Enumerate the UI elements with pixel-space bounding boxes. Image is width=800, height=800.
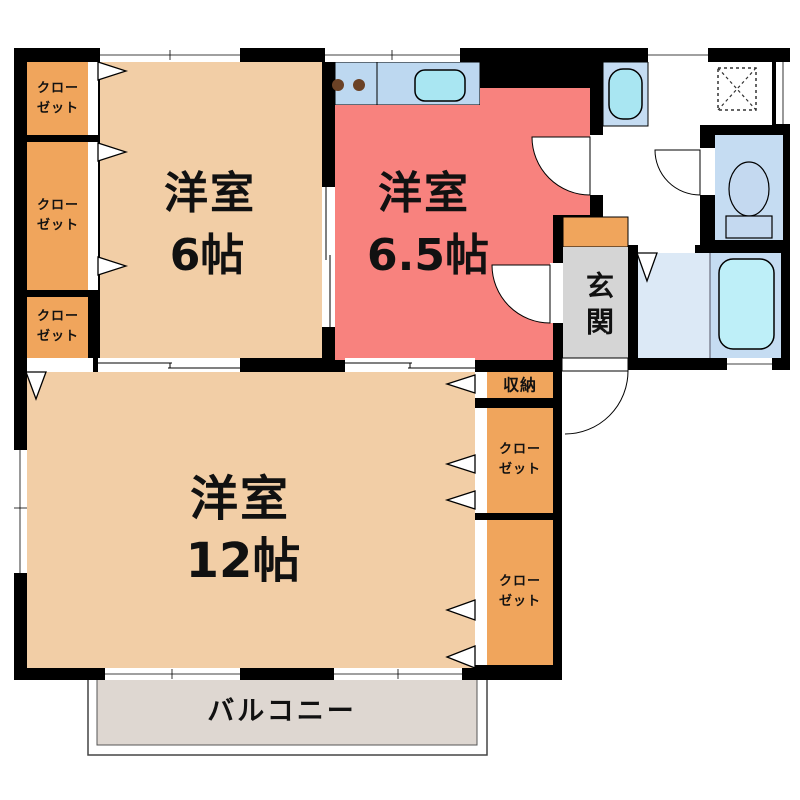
stove-burner-2 — [353, 79, 365, 91]
bedroom12-name: 洋室 — [190, 474, 290, 524]
closet-right-2-door-strip — [475, 520, 487, 665]
storage-label: 収納 — [503, 378, 537, 395]
closet-left-2-door-strip — [88, 142, 98, 290]
closet-right-2-label: クロー ゼット — [499, 572, 541, 612]
bedroom12-size: 12帖 — [186, 536, 301, 586]
bedroom65-name: 洋室 — [378, 171, 470, 217]
stove-burner-1 — [332, 79, 344, 91]
bedroom65-size: 6.5帖 — [367, 233, 489, 279]
closet-left-1-label: クロー ゼット — [37, 79, 79, 119]
closet-label-line1: クロー — [499, 572, 541, 592]
closet-left-3-label: クロー ゼット — [37, 307, 79, 347]
sliding-door-12-a — [98, 358, 240, 372]
bedroom6-name: 洋室 — [164, 171, 256, 217]
closet-label-line2: ゼット — [37, 99, 79, 119]
bedroom6-size: 6帖 — [170, 233, 245, 279]
bathroom-threshold — [638, 245, 695, 253]
sliding-door-6-65 — [322, 187, 335, 327]
closet-right-1-label: クロー ゼット — [499, 440, 541, 480]
closet-label-line2: ゼット — [37, 327, 79, 347]
closet-left-3-fold-opening — [27, 358, 93, 372]
balcony-label: バルコニー — [207, 698, 356, 726]
floor-plan-drawing — [0, 0, 800, 800]
closet-left-2-label: クロー ゼット — [37, 196, 79, 236]
window-left-wall — [14, 450, 27, 573]
closet-label-line1: クロー — [37, 307, 79, 327]
closet-label-line2: ゼット — [499, 592, 541, 612]
toilet-bowl — [729, 162, 769, 216]
closet-right-1-door-strip — [475, 408, 487, 513]
closet-label-line1: クロー — [37, 196, 79, 216]
storage-door-strip — [475, 372, 487, 398]
genkan-step — [563, 217, 628, 247]
entrance-label: 玄関 — [584, 271, 612, 343]
door-toilet-opening — [700, 148, 715, 195]
closet-label-line1: クロー — [37, 79, 79, 99]
bathtub — [719, 259, 774, 349]
door-red-genkan-opening — [550, 263, 563, 323]
closet-label-line2: ゼット — [499, 460, 541, 480]
entrance-door-leaf — [562, 358, 628, 371]
door-red-washroom-opening — [590, 135, 603, 195]
closet-label-line1: クロー — [499, 440, 541, 460]
floor-plan: 洋室 6帖 洋室 6.5帖 洋室 12帖 クロー ゼット クロー ゼット クロー… — [0, 0, 800, 800]
washbasin-bowl — [609, 69, 642, 119]
closet-label-line2: ゼット — [37, 216, 79, 236]
toilet-tank — [726, 216, 772, 238]
kitchen-sink — [415, 70, 465, 101]
closet-left-1-door-strip — [88, 62, 98, 135]
